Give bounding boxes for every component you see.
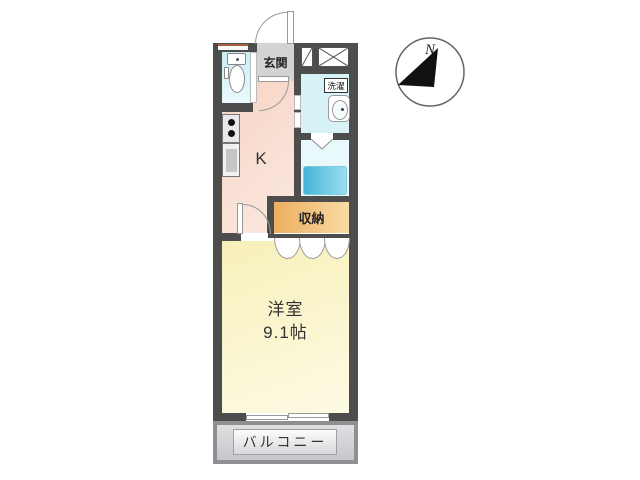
front-door-arc xyxy=(255,12,287,44)
washroom-door-segment xyxy=(294,112,301,128)
bathroom-folding-door-icon xyxy=(311,139,333,151)
cross-box-icon xyxy=(319,48,348,66)
kitchen-sink-basin xyxy=(226,149,237,172)
wall-toilet-bottom xyxy=(222,103,253,112)
toilet-bowl xyxy=(229,65,245,93)
main-room-name: 洋室 xyxy=(222,298,349,321)
toilet-tank xyxy=(227,53,246,65)
balcony-label-box: バルコニー xyxy=(233,429,337,455)
washroom-door-segment xyxy=(294,95,301,110)
laundry-spot: 洗濯 xyxy=(324,78,348,93)
washbasin-bowl xyxy=(332,100,348,120)
storage-label: 収納 xyxy=(298,208,324,227)
diagonal-line-icon xyxy=(302,48,312,66)
closet-folding-doors xyxy=(274,238,349,259)
toilet-flush-button xyxy=(236,58,239,61)
kitchen-room-door-opening xyxy=(241,233,268,241)
balcony-label: バルコニー xyxy=(243,432,328,452)
toilet-window xyxy=(218,44,248,50)
window-pane xyxy=(288,413,329,418)
floor-plan-canvas: 収納 玄関 洗濯 xyxy=(0,0,640,480)
wall-right xyxy=(349,43,358,421)
wall-bottom-right xyxy=(329,413,358,421)
wall-washroom-top xyxy=(301,67,349,74)
stove-burner xyxy=(228,130,235,137)
folding-door-leaf xyxy=(324,238,350,259)
main-room-size: 9.1帖 xyxy=(222,321,349,344)
stove-fixture xyxy=(222,114,240,143)
entrance-label: 玄関 xyxy=(263,54,287,71)
front-door-panel xyxy=(287,11,294,44)
washbasin-fixture xyxy=(328,95,350,122)
bathtub-fixture xyxy=(303,166,347,195)
meter-box xyxy=(318,47,349,67)
window-pane xyxy=(246,415,288,420)
pipe-space-box xyxy=(301,47,313,67)
wall-kitchen-bottom xyxy=(213,233,241,241)
wall-left xyxy=(213,43,222,421)
wall-bottom-left xyxy=(213,413,246,421)
compass-north-label: N xyxy=(424,42,436,58)
washbasin-drain xyxy=(341,108,344,111)
stove-burner xyxy=(228,119,235,126)
kitchen-label: K xyxy=(246,149,276,169)
main-room-label: 洋室 9.1帖 xyxy=(222,298,349,344)
storage-closet: 収納 xyxy=(274,202,349,233)
laundry-label: 洗濯 xyxy=(327,80,344,92)
folding-door-leaf xyxy=(299,238,326,259)
toilet-door xyxy=(250,52,257,103)
compass-icon: N xyxy=(392,34,468,110)
kitchen-sink-counter xyxy=(222,143,240,177)
folding-door-leaf xyxy=(274,238,301,259)
